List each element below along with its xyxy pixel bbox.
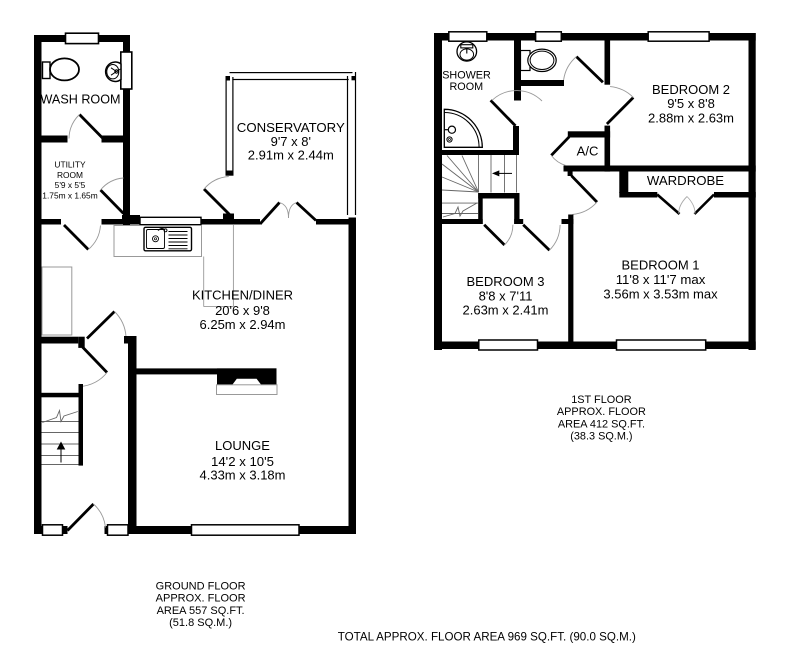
svg-text:AREA 412 SQ.FT.: AREA 412 SQ.FT. — [558, 418, 645, 430]
svg-text:KITCHEN/DINER: KITCHEN/DINER — [192, 287, 293, 302]
svg-text:WARDROBE: WARDROBE — [647, 173, 724, 188]
svg-text:2.63m x 2.41m: 2.63m x 2.41m — [463, 303, 549, 318]
svg-text:UTILITY: UTILITY — [54, 160, 86, 170]
svg-text:6.25m x 2.94m: 6.25m x 2.94m — [200, 317, 286, 332]
svg-text:CONSERVATORY: CONSERVATORY — [237, 120, 345, 135]
svg-text:11'8 x 11'7 max: 11'8 x 11'7 max — [616, 272, 706, 287]
svg-text:WASH ROOM: WASH ROOM — [41, 92, 121, 106]
svg-text:BEDROOM 3: BEDROOM 3 — [466, 274, 544, 289]
svg-text:2.88m x 2.63m: 2.88m x 2.63m — [648, 111, 734, 126]
svg-text:BEDROOM 2: BEDROOM 2 — [652, 82, 730, 97]
svg-text:3.56m x 3.53m max: 3.56m x 3.53m max — [603, 287, 718, 302]
svg-text:APPROX. FLOOR: APPROX. FLOOR — [557, 406, 646, 418]
svg-text:5'9 x 5'5: 5'9 x 5'5 — [55, 180, 86, 190]
svg-text:SHOWER: SHOWER — [442, 70, 491, 82]
svg-text:1ST FLOOR: 1ST FLOOR — [571, 394, 631, 406]
svg-text:BEDROOM 1: BEDROOM 1 — [621, 258, 699, 273]
svg-text:9'5 x 8'8: 9'5 x 8'8 — [667, 96, 715, 111]
svg-text:APPROX. FLOOR: APPROX. FLOOR — [156, 593, 246, 605]
svg-text:GROUND FLOOR: GROUND FLOOR — [156, 580, 246, 592]
svg-text:(51.8 SQ.M.): (51.8 SQ.M.) — [169, 617, 232, 629]
svg-text:1.75m x 1.65m: 1.75m x 1.65m — [42, 190, 97, 200]
svg-text:14'2 x 10'5: 14'2 x 10'5 — [211, 454, 274, 469]
svg-text:ROOM: ROOM — [57, 170, 83, 180]
svg-text:AREA 557 SQ.FT.: AREA 557 SQ.FT. — [157, 605, 245, 617]
svg-text:(38.3 SQ.M.): (38.3 SQ.M.) — [570, 431, 632, 443]
svg-text:A/C: A/C — [577, 143, 599, 158]
svg-text:2.91m x 2.44m: 2.91m x 2.44m — [248, 148, 334, 163]
svg-text:8'8 x 7'11: 8'8 x 7'11 — [479, 288, 533, 303]
svg-text:4.33m x 3.18m: 4.33m x 3.18m — [200, 468, 286, 483]
svg-text:LOUNGE: LOUNGE — [215, 438, 270, 453]
svg-text:ROOM: ROOM — [450, 81, 484, 93]
svg-text:TOTAL APPROX. FLOOR AREA 969 S: TOTAL APPROX. FLOOR AREA 969 SQ.FT. (90.… — [338, 630, 636, 643]
